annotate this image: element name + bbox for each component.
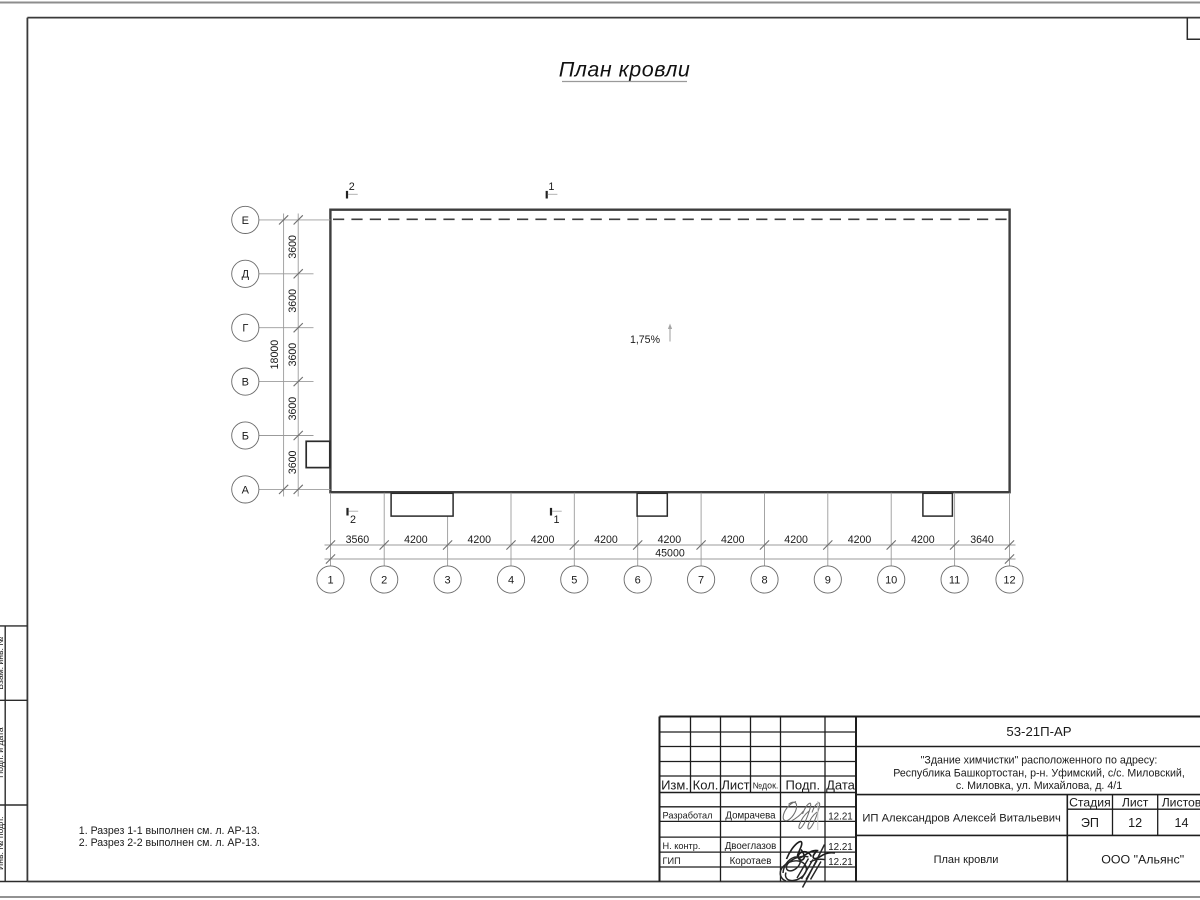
svg-text:Е: Е [242,215,249,227]
svg-text:Изм.: Изм. [661,777,689,792]
svg-text:12.21: 12.21 [828,842,853,853]
svg-text:45000: 45000 [655,547,685,559]
svg-text:2: 2 [350,514,356,526]
svg-text:10: 10 [885,574,897,586]
svg-text:4200: 4200 [848,534,872,546]
svg-text:Двоеглазов: Двоеглазов [725,841,777,852]
svg-text:5: 5 [571,574,577,586]
svg-text:с. Миловка, ул. Михайлова, д.: с. Миловка, ул. Михайлова, д. 4/1 [956,780,1122,792]
svg-text:2: 2 [381,574,387,586]
svg-text:ЭП: ЭП [1081,816,1099,830]
svg-text:12.21: 12.21 [828,857,853,868]
svg-text:В: В [242,377,249,389]
svg-text:4200: 4200 [721,534,745,546]
svg-text:12: 12 [1128,816,1142,830]
svg-text:1: 1 [548,181,554,193]
svg-text:План кровли: План кровли [559,58,691,82]
svg-text:2. Разрез 2-2 выполнен см. л.: 2. Разрез 2-2 выполнен см. л. АР-13. [79,837,260,849]
svg-text:Н. контр.: Н. контр. [663,841,701,851]
svg-text:Б: Б [242,430,249,442]
svg-text:Разработал: Разработал [663,810,713,820]
svg-text:1,75%: 1,75% [630,334,661,346]
svg-text:Коротаев: Коротаев [730,856,772,867]
svg-text:6: 6 [635,574,641,586]
svg-text:7: 7 [698,574,704,586]
svg-text:3: 3 [445,574,451,586]
svg-text:Д: Д [242,269,250,281]
svg-text:3560: 3560 [346,534,370,546]
svg-text:3640: 3640 [970,534,994,546]
svg-text:2: 2 [349,181,355,193]
svg-text:1. Разрез 1-1 выполнен см. л.: 1. Разрез 1-1 выполнен см. л. АР-13. [79,825,260,837]
svg-text:1: 1 [327,574,333,586]
svg-text:14: 14 [1174,816,1188,830]
svg-text:8: 8 [761,574,767,586]
svg-text:3600: 3600 [287,343,299,367]
svg-text:1: 1 [553,514,559,526]
svg-text:Г: Г [242,323,248,335]
svg-text:12: 12 [1003,574,1015,586]
svg-text:3600: 3600 [287,235,299,259]
svg-text:4200: 4200 [784,534,808,546]
svg-text:3600: 3600 [287,451,299,475]
svg-text:4200: 4200 [911,534,935,546]
svg-text:ООО "Альянс": ООО "Альянс" [1101,853,1184,867]
svg-text:Стадия: Стадия [1069,796,1111,810]
svg-text:4200: 4200 [404,534,428,546]
svg-text:План кровли: План кровли [934,854,999,866]
svg-text:11: 11 [949,574,960,586]
svg-text:3600: 3600 [287,397,299,421]
svg-text:Домрачева: Домрачева [725,810,776,821]
svg-text:4200: 4200 [594,534,618,546]
svg-text:Республика Башкортостан, р-н.: Республика Башкортостан, р-н. Уфимский, … [893,767,1185,779]
svg-text:9: 9 [825,574,831,586]
svg-text:53-21П-АР: 53-21П-АР [1006,724,1071,739]
svg-text:А: А [242,484,250,496]
svg-text:4200: 4200 [658,534,682,546]
svg-text:ГИП: ГИП [663,856,681,866]
svg-text:Инв. № подл.: Инв. № подл. [0,816,5,870]
svg-text:Лист: Лист [721,777,749,792]
svg-text:4200: 4200 [468,534,492,546]
svg-text:4: 4 [508,574,514,586]
svg-text:18000: 18000 [269,340,281,370]
svg-text:Лист: Лист [1122,796,1149,810]
svg-text:Дата: Дата [826,777,856,792]
svg-text:3600: 3600 [287,289,299,313]
svg-text:№док.: №док. [753,781,779,791]
svg-text:Листов: Листов [1162,796,1200,810]
svg-text:"Здание химчистки" расположенн: "Здание химчистки" расположенного по адр… [921,755,1158,767]
svg-text:Взам. инв. №: Взам. инв. № [0,636,5,689]
svg-text:Кол.: Кол. [693,777,719,792]
svg-text:Подп.: Подп. [786,777,821,792]
svg-text:12.21: 12.21 [828,811,853,822]
svg-text:4200: 4200 [531,534,555,546]
svg-text:Подп. и дата: Подп. и дата [0,727,5,778]
svg-text:ИП Александров Алексей Виталье: ИП Александров Алексей Витальевич [862,812,1061,824]
